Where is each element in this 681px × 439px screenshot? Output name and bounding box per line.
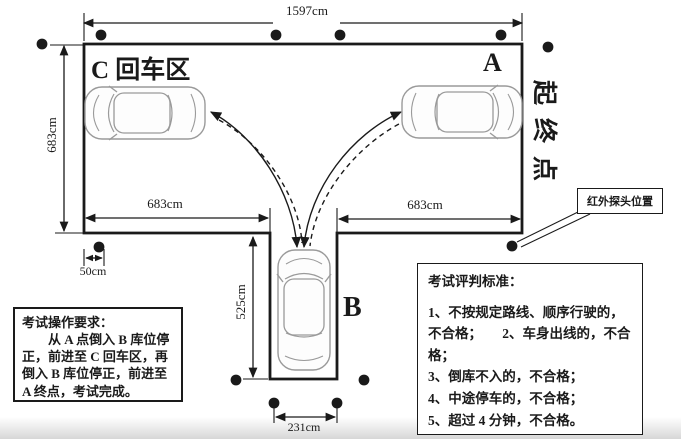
trajectory-to-c-dashed: [219, 120, 302, 243]
car-a: [402, 85, 522, 139]
dim-label-garage-depth: 525cm: [233, 279, 249, 325]
criteria-item-4: 4、中途停车的，不合格；: [428, 388, 632, 410]
start-end-label: 起终点: [534, 80, 564, 202]
criteria-item-3: 3、倒库不入的，不合格；: [428, 366, 632, 388]
dim-label-probe-offset: 50cm: [67, 264, 119, 279]
point-b-label: B: [343, 292, 362, 324]
car-b: [277, 250, 331, 370]
trajectory-to-c-solid: [211, 112, 297, 247]
requirements-title: 考试操作要求：: [22, 314, 174, 331]
dim-label-left: 683cm: [44, 112, 60, 158]
criteria-box: 考试评判标准： 1、不按规定路线、顺序行驶的，不合格； 2、车身出线的，不合格；…: [417, 263, 643, 435]
dim-label-garage-width: 231cm: [273, 420, 335, 435]
zone-c-label: C 回车区: [91, 50, 190, 86]
infrared-pointer-lines: [517, 212, 590, 247]
dim-label-bottom-left: 683cm: [130, 196, 200, 212]
driving-test-course-diagram: 1597cm 683cm 683cm 683cm 525cm 50cm 231c…: [0, 0, 681, 439]
car-c: [85, 86, 205, 140]
dim-label-top: 1597cm: [272, 3, 342, 19]
criteria-title: 考试评判标准：: [428, 271, 632, 293]
requirements-body: 从 A 点倒入 B 库位停正，前进至 C 回车区，再倒入 B 库位停正，前进至 …: [22, 331, 174, 400]
requirements-box: 考试操作要求： 从 A 点倒入 B 库位停正，前进至 C 回车区，再倒入 B 库…: [13, 307, 183, 402]
criteria-item-1-2: 1、不按规定路线、顺序行驶的，不合格； 2、车身出线的，不合格；: [428, 302, 632, 367]
dim-label-bottom-right: 683cm: [390, 197, 460, 213]
trajectory-to-a-solid: [304, 112, 401, 247]
criteria-item-5: 5、超过 4 分钟，不合格。: [428, 410, 632, 432]
point-a-label: A: [483, 48, 502, 78]
trajectory-paths: [211, 112, 407, 247]
infrared-probe-label: 红外探头位置: [577, 188, 663, 214]
